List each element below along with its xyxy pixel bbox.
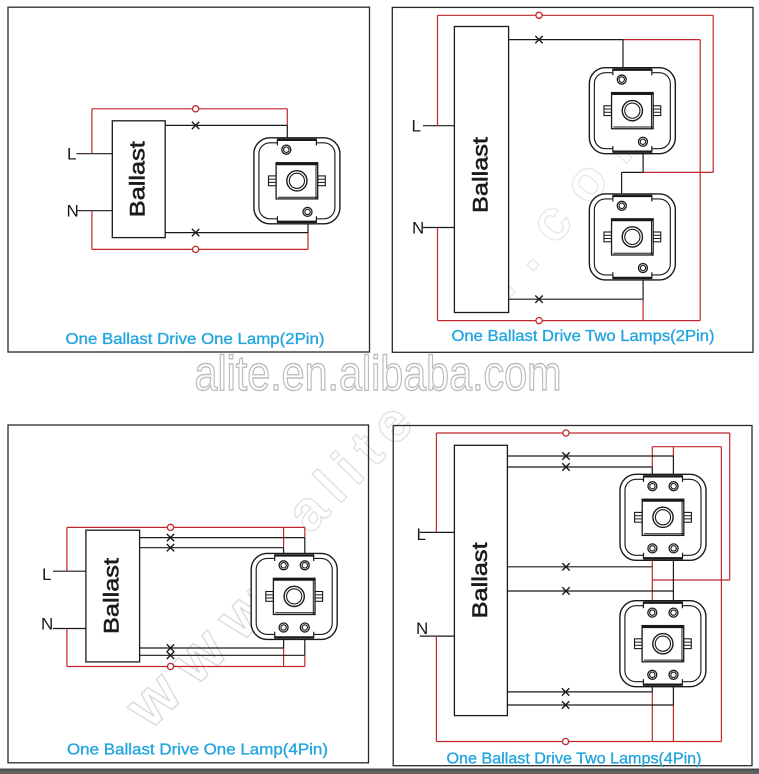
svg-text:One Ballast Drive One Lamp(4Pi: One Ballast Drive One Lamp(4Pin) xyxy=(67,742,328,759)
svg-text:One Ballast Drive Two Lamps(2P: One Ballast Drive Two Lamps(2Pin) xyxy=(452,328,715,345)
svg-text:L: L xyxy=(67,144,76,163)
svg-text:Ballast: Ballast xyxy=(470,137,493,213)
svg-text:N: N xyxy=(41,615,53,634)
svg-text:L: L xyxy=(417,525,426,544)
svg-text:Ballast: Ballast xyxy=(101,558,124,634)
svg-text:One Ballast Drive One Lamp(2Pi: One Ballast Drive One Lamp(2Pin) xyxy=(66,331,325,348)
svg-text:alite.en.alibaba.com: alite.en.alibaba.com xyxy=(195,347,562,401)
svg-text:N: N xyxy=(412,218,424,237)
svg-text:One Ballast Drive Two Lamps(4P: One Ballast Drive Two Lamps(4Pin) xyxy=(447,750,702,767)
svg-text:L: L xyxy=(412,117,421,136)
svg-text:Ballast: Ballast xyxy=(127,141,150,217)
svg-text:alite: alite xyxy=(273,383,431,543)
svg-text:N: N xyxy=(416,619,428,638)
svg-text:Ballast: Ballast xyxy=(469,542,492,618)
svg-text:L: L xyxy=(42,565,51,584)
